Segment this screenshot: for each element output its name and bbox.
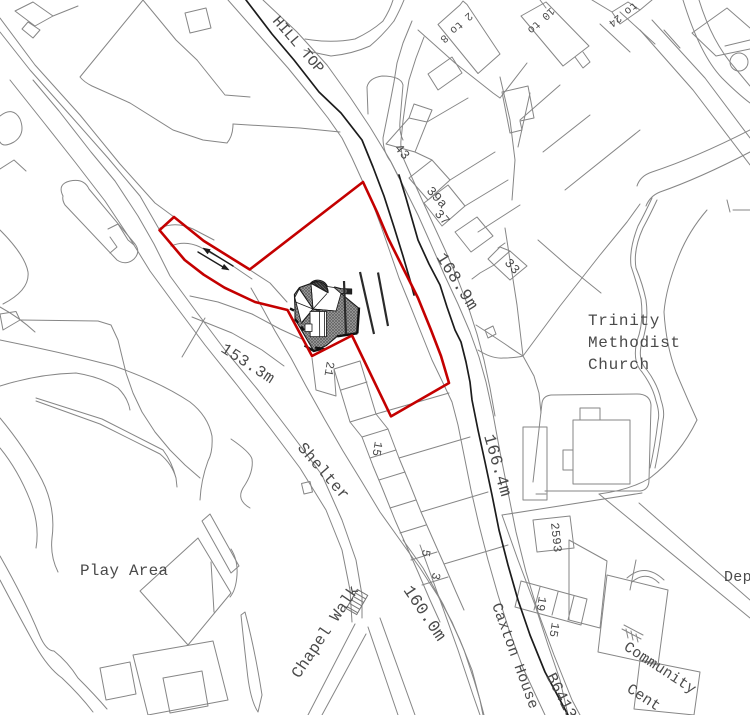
svg-text:19: 19 xyxy=(532,595,548,612)
svg-text:Church: Church xyxy=(588,356,650,374)
svg-text:15: 15 xyxy=(368,440,384,457)
svg-text:21: 21 xyxy=(320,360,336,377)
svg-text:Methodist: Methodist xyxy=(588,334,681,352)
svg-text:15: 15 xyxy=(545,621,561,638)
svg-text:Trinity: Trinity xyxy=(588,312,660,330)
svg-text:Play Area: Play Area xyxy=(80,562,168,580)
svg-text:Dep: Dep xyxy=(724,569,750,586)
